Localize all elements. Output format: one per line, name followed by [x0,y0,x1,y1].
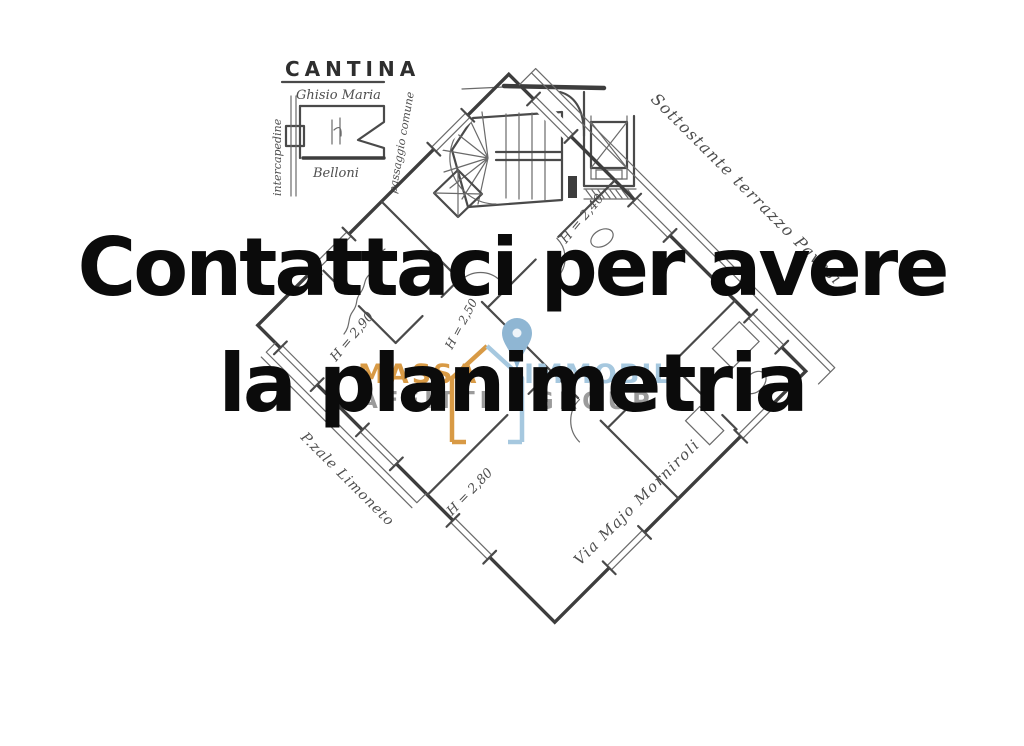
headline-line-1: Contattaci per avere [0,228,1024,308]
cantina-owner-note: Ghisio Maria [296,88,381,103]
cantina-room-note: Belloni [312,166,359,181]
headline-line-2: la planimetria [0,344,1024,424]
cantina-title: CANTINA [285,57,420,81]
height-label: H = 2,80 [443,466,496,520]
cantina-left-note: intercapedine [271,118,284,196]
cantina-room-outline [286,106,384,158]
listing-placeholder-image: CANTINA Ghisio Maria Belloni intercapedi… [0,0,1024,746]
cantina-sketch: CANTINA Ghisio Maria Belloni intercapedi… [271,57,420,196]
wall-stub [568,176,577,198]
landing-hatch [434,170,482,217]
cantina-right-note: passaggio comune [386,90,417,194]
